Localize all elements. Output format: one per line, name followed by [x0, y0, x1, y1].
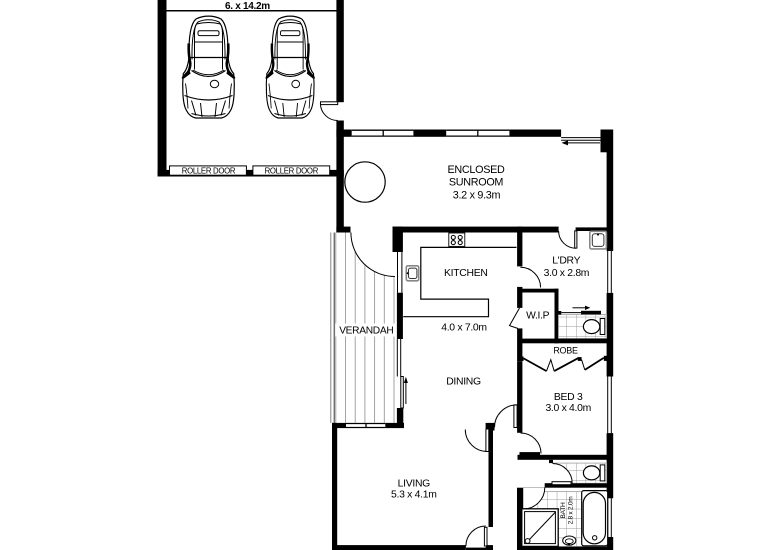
svg-text:5.3 x 4.1m: 5.3 x 4.1m — [391, 489, 437, 500]
svg-text:ROLLER DOOR: ROLLER DOOR — [265, 166, 319, 175]
svg-text:3.0 x 4.0m: 3.0 x 4.0m — [545, 403, 591, 414]
svg-text:DINING: DINING — [446, 376, 481, 387]
svg-text:W.I.P: W.I.P — [526, 311, 550, 322]
svg-text:BATH: BATH — [560, 502, 567, 518]
svg-text:VERANDAH: VERANDAH — [339, 326, 393, 337]
svg-text:6. x 14.2m: 6. x 14.2m — [225, 1, 270, 12]
svg-text:SUNROOM: SUNROOM — [449, 177, 504, 189]
svg-text:KITCHEN: KITCHEN — [444, 268, 488, 279]
svg-text:ROLLER DOOR: ROLLER DOOR — [182, 166, 236, 175]
svg-text:2.8 x 2.0m: 2.8 x 2.0m — [567, 496, 574, 525]
svg-text:ROBE: ROBE — [553, 345, 578, 355]
svg-text:BED 3: BED 3 — [554, 392, 583, 403]
svg-text:4.0 x 7.0m: 4.0 x 7.0m — [441, 322, 487, 333]
svg-text:L'DRY: L'DRY — [552, 256, 580, 267]
svg-text:3.0 x 2.8m: 3.0 x 2.8m — [544, 268, 590, 279]
svg-text:3.2 x 9.3m: 3.2 x 9.3m — [453, 190, 501, 202]
svg-text:LIVING: LIVING — [398, 478, 430, 489]
svg-text:ENCLOSED: ENCLOSED — [448, 164, 506, 176]
